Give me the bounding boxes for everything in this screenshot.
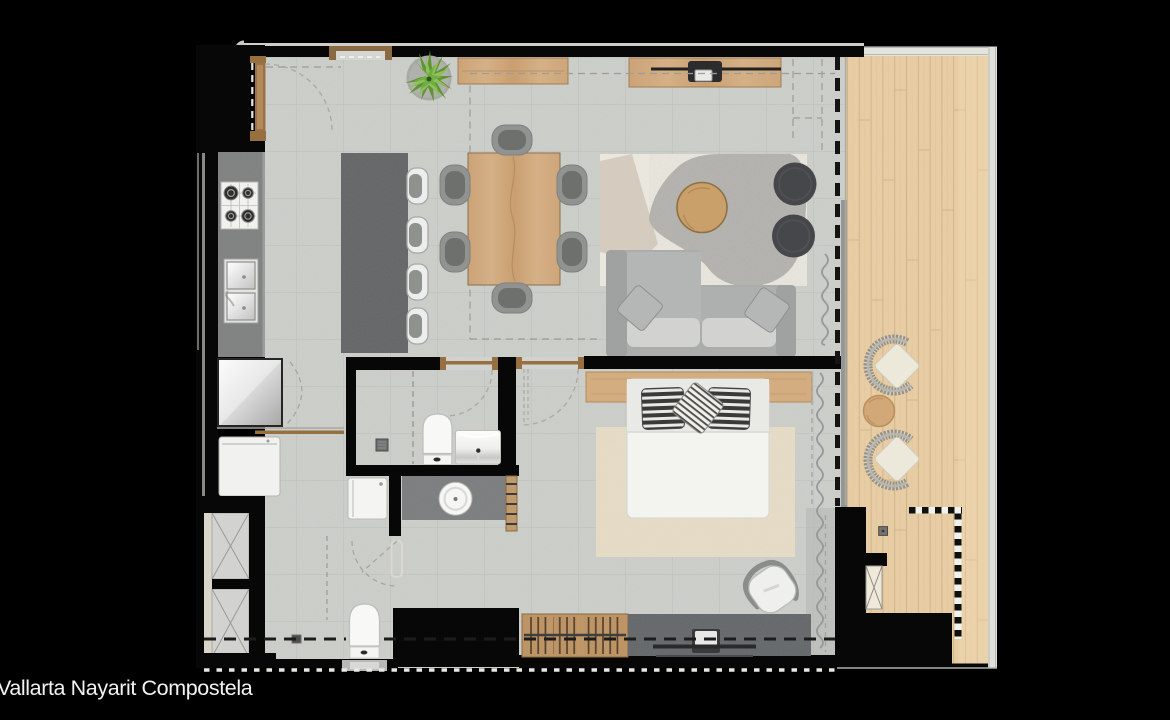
- svg-text:Vallarta Nayarit Compostela: Vallarta Nayarit Compostela: [0, 676, 253, 700]
